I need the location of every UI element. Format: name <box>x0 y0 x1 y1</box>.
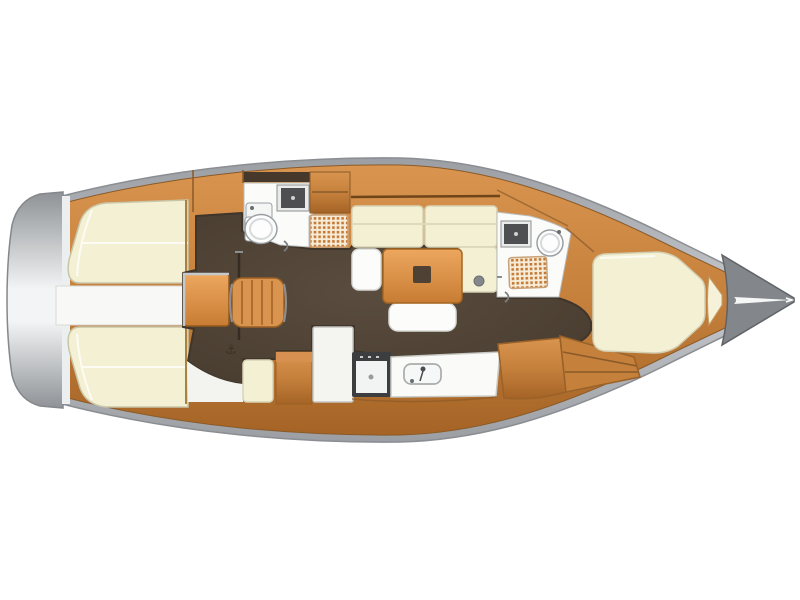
chart-table <box>184 274 229 326</box>
transom-platform <box>7 192 63 408</box>
galley-faucet <box>421 367 426 372</box>
galley-faucet-lever <box>410 379 414 383</box>
companionway-step-top <box>276 352 312 362</box>
salon-bench <box>389 303 456 331</box>
fwd-head-sink-drain <box>514 232 518 236</box>
stove-burner <box>369 375 374 380</box>
aft-berth-port <box>68 200 188 283</box>
galley-seat <box>243 360 273 402</box>
nav-station <box>184 274 286 327</box>
salon-table-inlay <box>413 266 431 283</box>
aft-shower-grate <box>310 215 348 247</box>
salon-stool <box>352 249 381 290</box>
fwd-head-faucet <box>557 230 561 234</box>
settee-cushion-fwd <box>425 206 497 247</box>
nav-seat <box>232 278 284 327</box>
anchor-glyph: ⚓ <box>225 343 237 358</box>
engine-walkway <box>56 286 188 325</box>
aft-head <box>243 172 350 251</box>
seam-above-settee <box>351 196 500 197</box>
berth-step <box>498 338 566 399</box>
boat-floorplan-canvas: ⚓ <box>0 0 800 600</box>
galley-fridge <box>313 327 353 402</box>
aft-head-hatch <box>243 172 313 182</box>
fwd-shower-grate <box>508 256 547 288</box>
table-leg-mount <box>474 276 484 286</box>
settee-cushion-aft <box>352 206 423 247</box>
floorplan-svg: ⚓ <box>0 0 800 600</box>
aft-head-sink-drain <box>291 196 295 200</box>
aft-head-faucet <box>250 206 254 210</box>
